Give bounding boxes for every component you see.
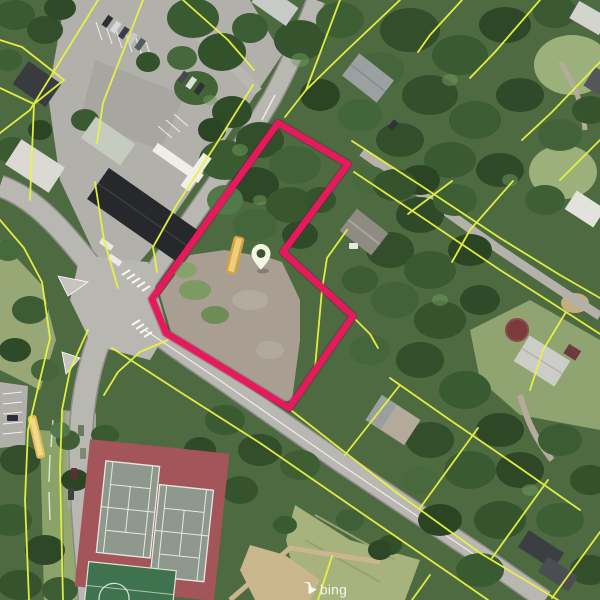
bing-wordmark: bing [320,583,347,598]
pin-shadow [257,269,269,274]
round-pool [506,319,528,341]
map-viewport[interactable]: bing [0,0,600,600]
pin-hole [257,249,266,258]
